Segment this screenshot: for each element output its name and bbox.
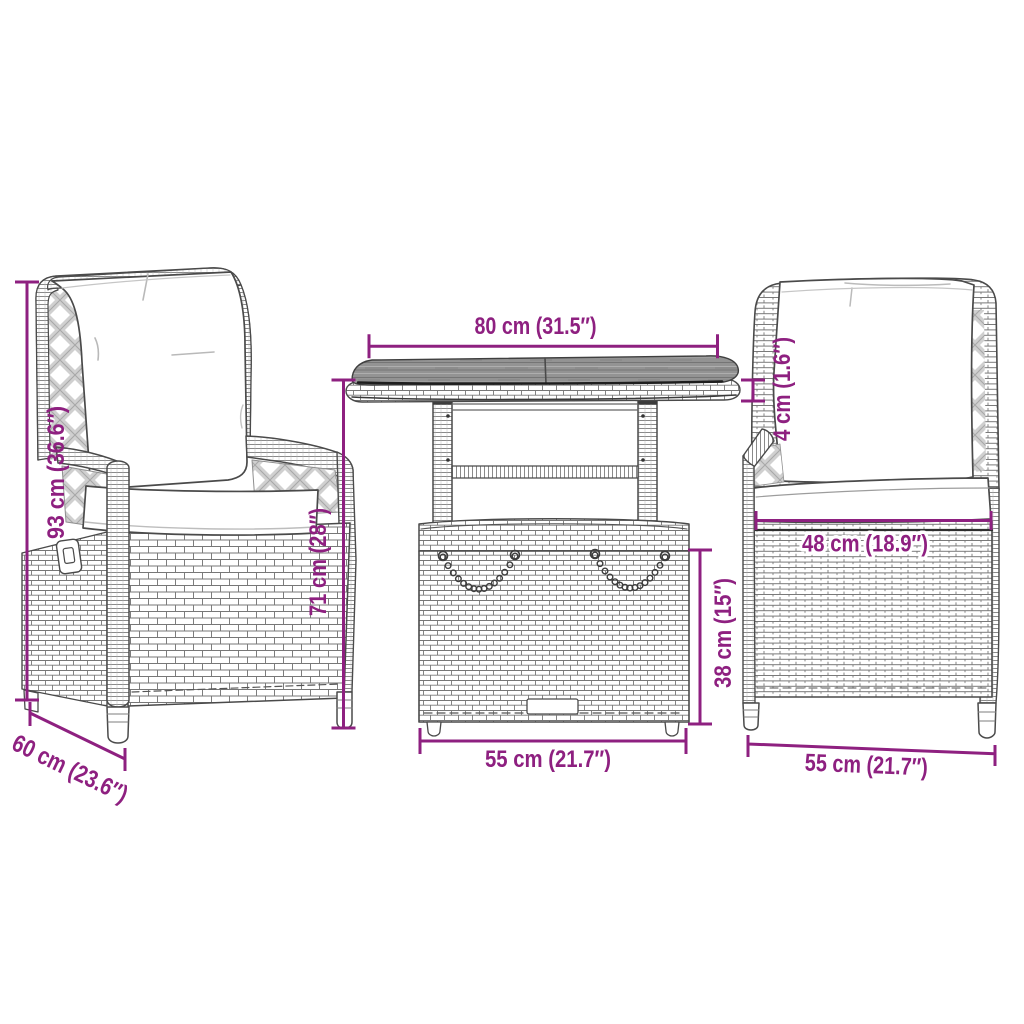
svg-text:55 cm (21.7″): 55 cm (21.7″) bbox=[485, 746, 611, 773]
svg-text:4 cm (1.6″): 4 cm (1.6″) bbox=[769, 337, 796, 441]
svg-text:55 cm (21.7″): 55 cm (21.7″) bbox=[804, 750, 928, 782]
svg-text:80 cm (31.5″): 80 cm (31.5″) bbox=[475, 313, 597, 340]
svg-text:93 cm (36.6″): 93 cm (36.6″) bbox=[43, 406, 70, 539]
svg-text:71 cm (28″): 71 cm (28″) bbox=[305, 508, 332, 616]
svg-text:48 cm (18.9″): 48 cm (18.9″) bbox=[802, 531, 928, 558]
svg-text:38 cm (15″): 38 cm (15″) bbox=[710, 578, 737, 688]
